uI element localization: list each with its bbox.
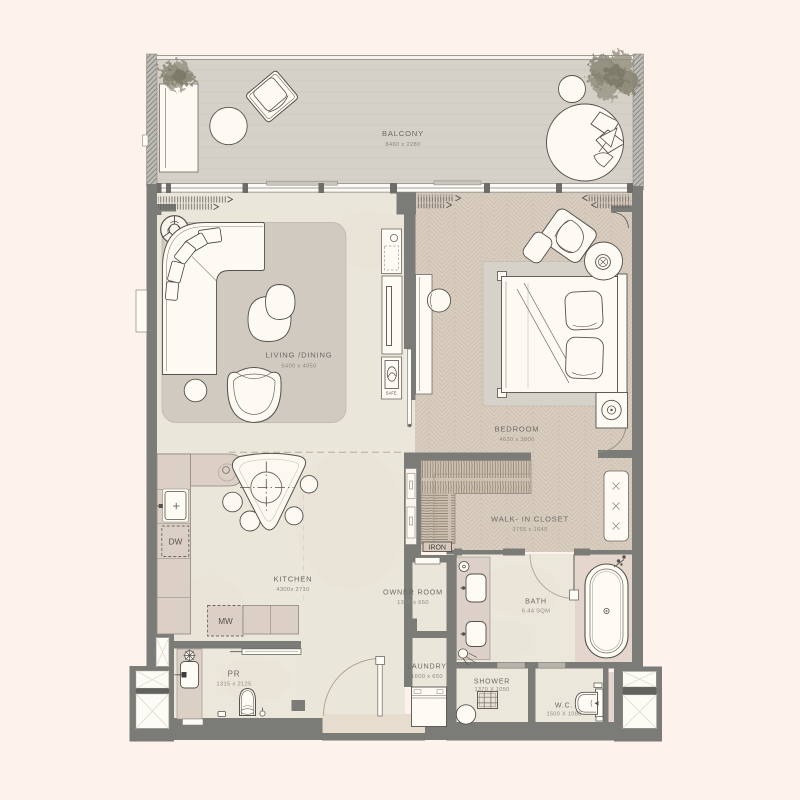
svg-text:4300x 2710: 4300x 2710 [276,587,309,593]
svg-text:SAFE.: SAFE. [386,391,398,396]
svg-text:BATH: BATH [525,597,547,606]
svg-text:6.44 SQM: 6.44 SQM [522,609,551,615]
svg-text:5400 x 4050: 5400 x 4050 [281,364,316,370]
svg-text:W.C.: W.C. [555,703,573,710]
svg-text:1300 x 650: 1300 x 650 [397,600,429,606]
svg-text:4630 x 3800: 4630 x 3800 [499,437,534,443]
svg-text:3755 x 1640: 3755 x 1640 [512,527,547,533]
svg-text:IRON: IRON [428,545,446,552]
svg-text:1315 x 2125: 1315 x 2125 [216,682,251,688]
svg-text:LAUNDRY: LAUNDRY [407,662,447,671]
svg-text:BEDROOM: BEDROOM [495,425,540,434]
svg-text:PR: PR [228,670,241,679]
svg-text:OWNER ROOM: OWNER ROOM [383,588,443,597]
svg-text:1370 X 1050: 1370 X 1050 [474,687,509,693]
svg-text:MW: MW [218,617,233,626]
svg-text:WALK- IN CLOSET: WALK- IN CLOSET [491,515,569,524]
svg-text:LIVING /DINING: LIVING /DINING [266,351,333,360]
svg-text:DW: DW [169,538,183,547]
svg-text:BALCONY: BALCONY [382,129,424,138]
svg-text:1500 X 1080: 1500 X 1080 [546,712,581,718]
svg-text:8460 x 2280: 8460 x 2280 [385,142,420,148]
svg-text:1600 x 650: 1600 x 650 [411,674,443,680]
svg-text:KITCHEN: KITCHEN [274,575,313,584]
svg-text:SHOWER: SHOWER [474,679,510,686]
